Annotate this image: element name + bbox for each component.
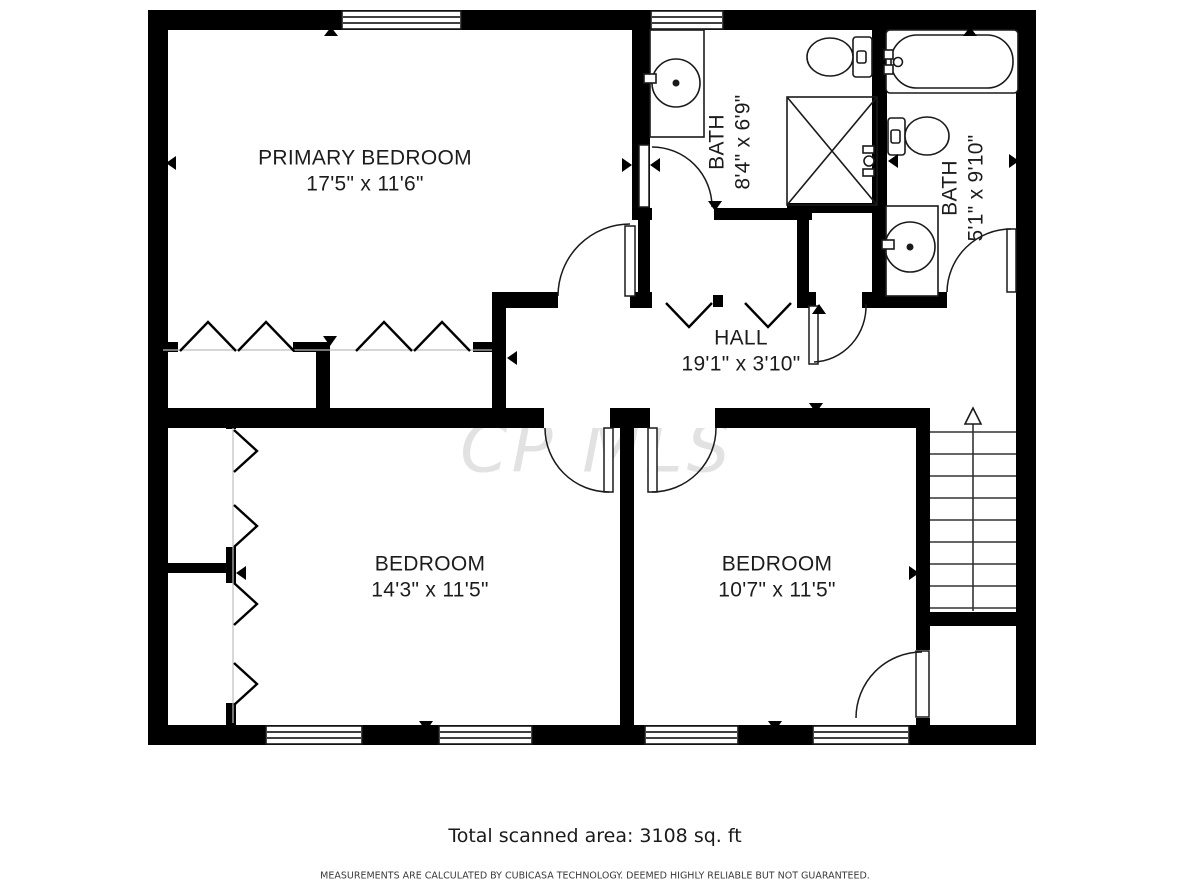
opening-icon: [666, 303, 712, 327]
stairs-icon: [930, 408, 1016, 611]
stairs: [930, 408, 1016, 611]
room-name: BATH: [705, 94, 731, 189]
sink-icon: [882, 206, 938, 296]
window-icon: [439, 726, 532, 744]
floor-plan-drawing: [0, 0, 1188, 888]
room-label-bath-1: BATH 8'4" x 6'9": [705, 94, 758, 189]
room-dims: 8'4" x 6'9": [731, 94, 757, 189]
interior-walls: [148, 10, 1016, 727]
measurement-disclaimer: MEASUREMENTS ARE CALCULATED BY CUBICASA …: [320, 871, 870, 882]
bifold-door-icon: [234, 430, 257, 472]
up-arrow-icon: [965, 408, 981, 424]
floor-plan-page: CP MLS: [0, 0, 1188, 888]
window-icon: [342, 11, 461, 29]
room-dims: 14'3" x 11'5": [371, 578, 489, 604]
sink-icon: [644, 30, 704, 137]
door-swing-icon: [558, 224, 635, 296]
bifold-door-icon: [234, 663, 257, 705]
window-icon: [266, 726, 362, 744]
window-icon: [645, 726, 738, 744]
open-passage-marks: [666, 303, 791, 327]
bifold-door-icon: [234, 583, 257, 625]
room-label-bath-2: BATH 5'1" x 9'10": [938, 134, 991, 241]
room-name: HALL: [681, 326, 800, 352]
windows: [266, 11, 909, 744]
room-dims: 17'5" x 11'6": [258, 172, 472, 198]
bifold-door-icon: [356, 322, 412, 351]
room-name: BATH: [938, 134, 964, 241]
bath1-fixtures: [644, 30, 877, 205]
bifold-door-icon: [414, 322, 470, 351]
door-openings: [544, 208, 1016, 718]
room-name: BEDROOM: [718, 552, 836, 578]
bifold-door-icon: [234, 505, 257, 547]
opening-icon: [745, 303, 791, 327]
room-name: PRIMARY BEDROOM: [258, 146, 472, 172]
toilet-icon: [807, 37, 872, 77]
room-label-hall: HALL 19'1" x 3'10": [681, 326, 800, 379]
door-swing-icon: [856, 651, 929, 718]
room-dims: 10'7" x 11'5": [718, 578, 836, 604]
bathtub-icon: [884, 30, 1018, 93]
total-scanned-area: Total scanned area: 3108 sq. ft: [448, 825, 741, 847]
room-dims: 5'1" x 9'10": [964, 134, 990, 241]
room-name: BEDROOM: [371, 552, 489, 578]
door-swing-icon: [545, 428, 613, 492]
door-swing-icon: [648, 428, 716, 492]
room-dims: 19'1" x 3'10": [681, 352, 800, 378]
bifold-door-icon: [238, 322, 294, 351]
window-icon: [813, 726, 909, 744]
room-label-primary-bedroom: PRIMARY BEDROOM 17'5" x 11'6": [258, 146, 472, 199]
shower-icon: [787, 97, 877, 205]
bifold-door-icon: [180, 322, 236, 351]
room-label-bedroom-left: BEDROOM 14'3" x 11'5": [371, 552, 489, 605]
window-icon: [651, 11, 723, 29]
room-label-bedroom-right: BEDROOM 10'7" x 11'5": [718, 552, 836, 605]
